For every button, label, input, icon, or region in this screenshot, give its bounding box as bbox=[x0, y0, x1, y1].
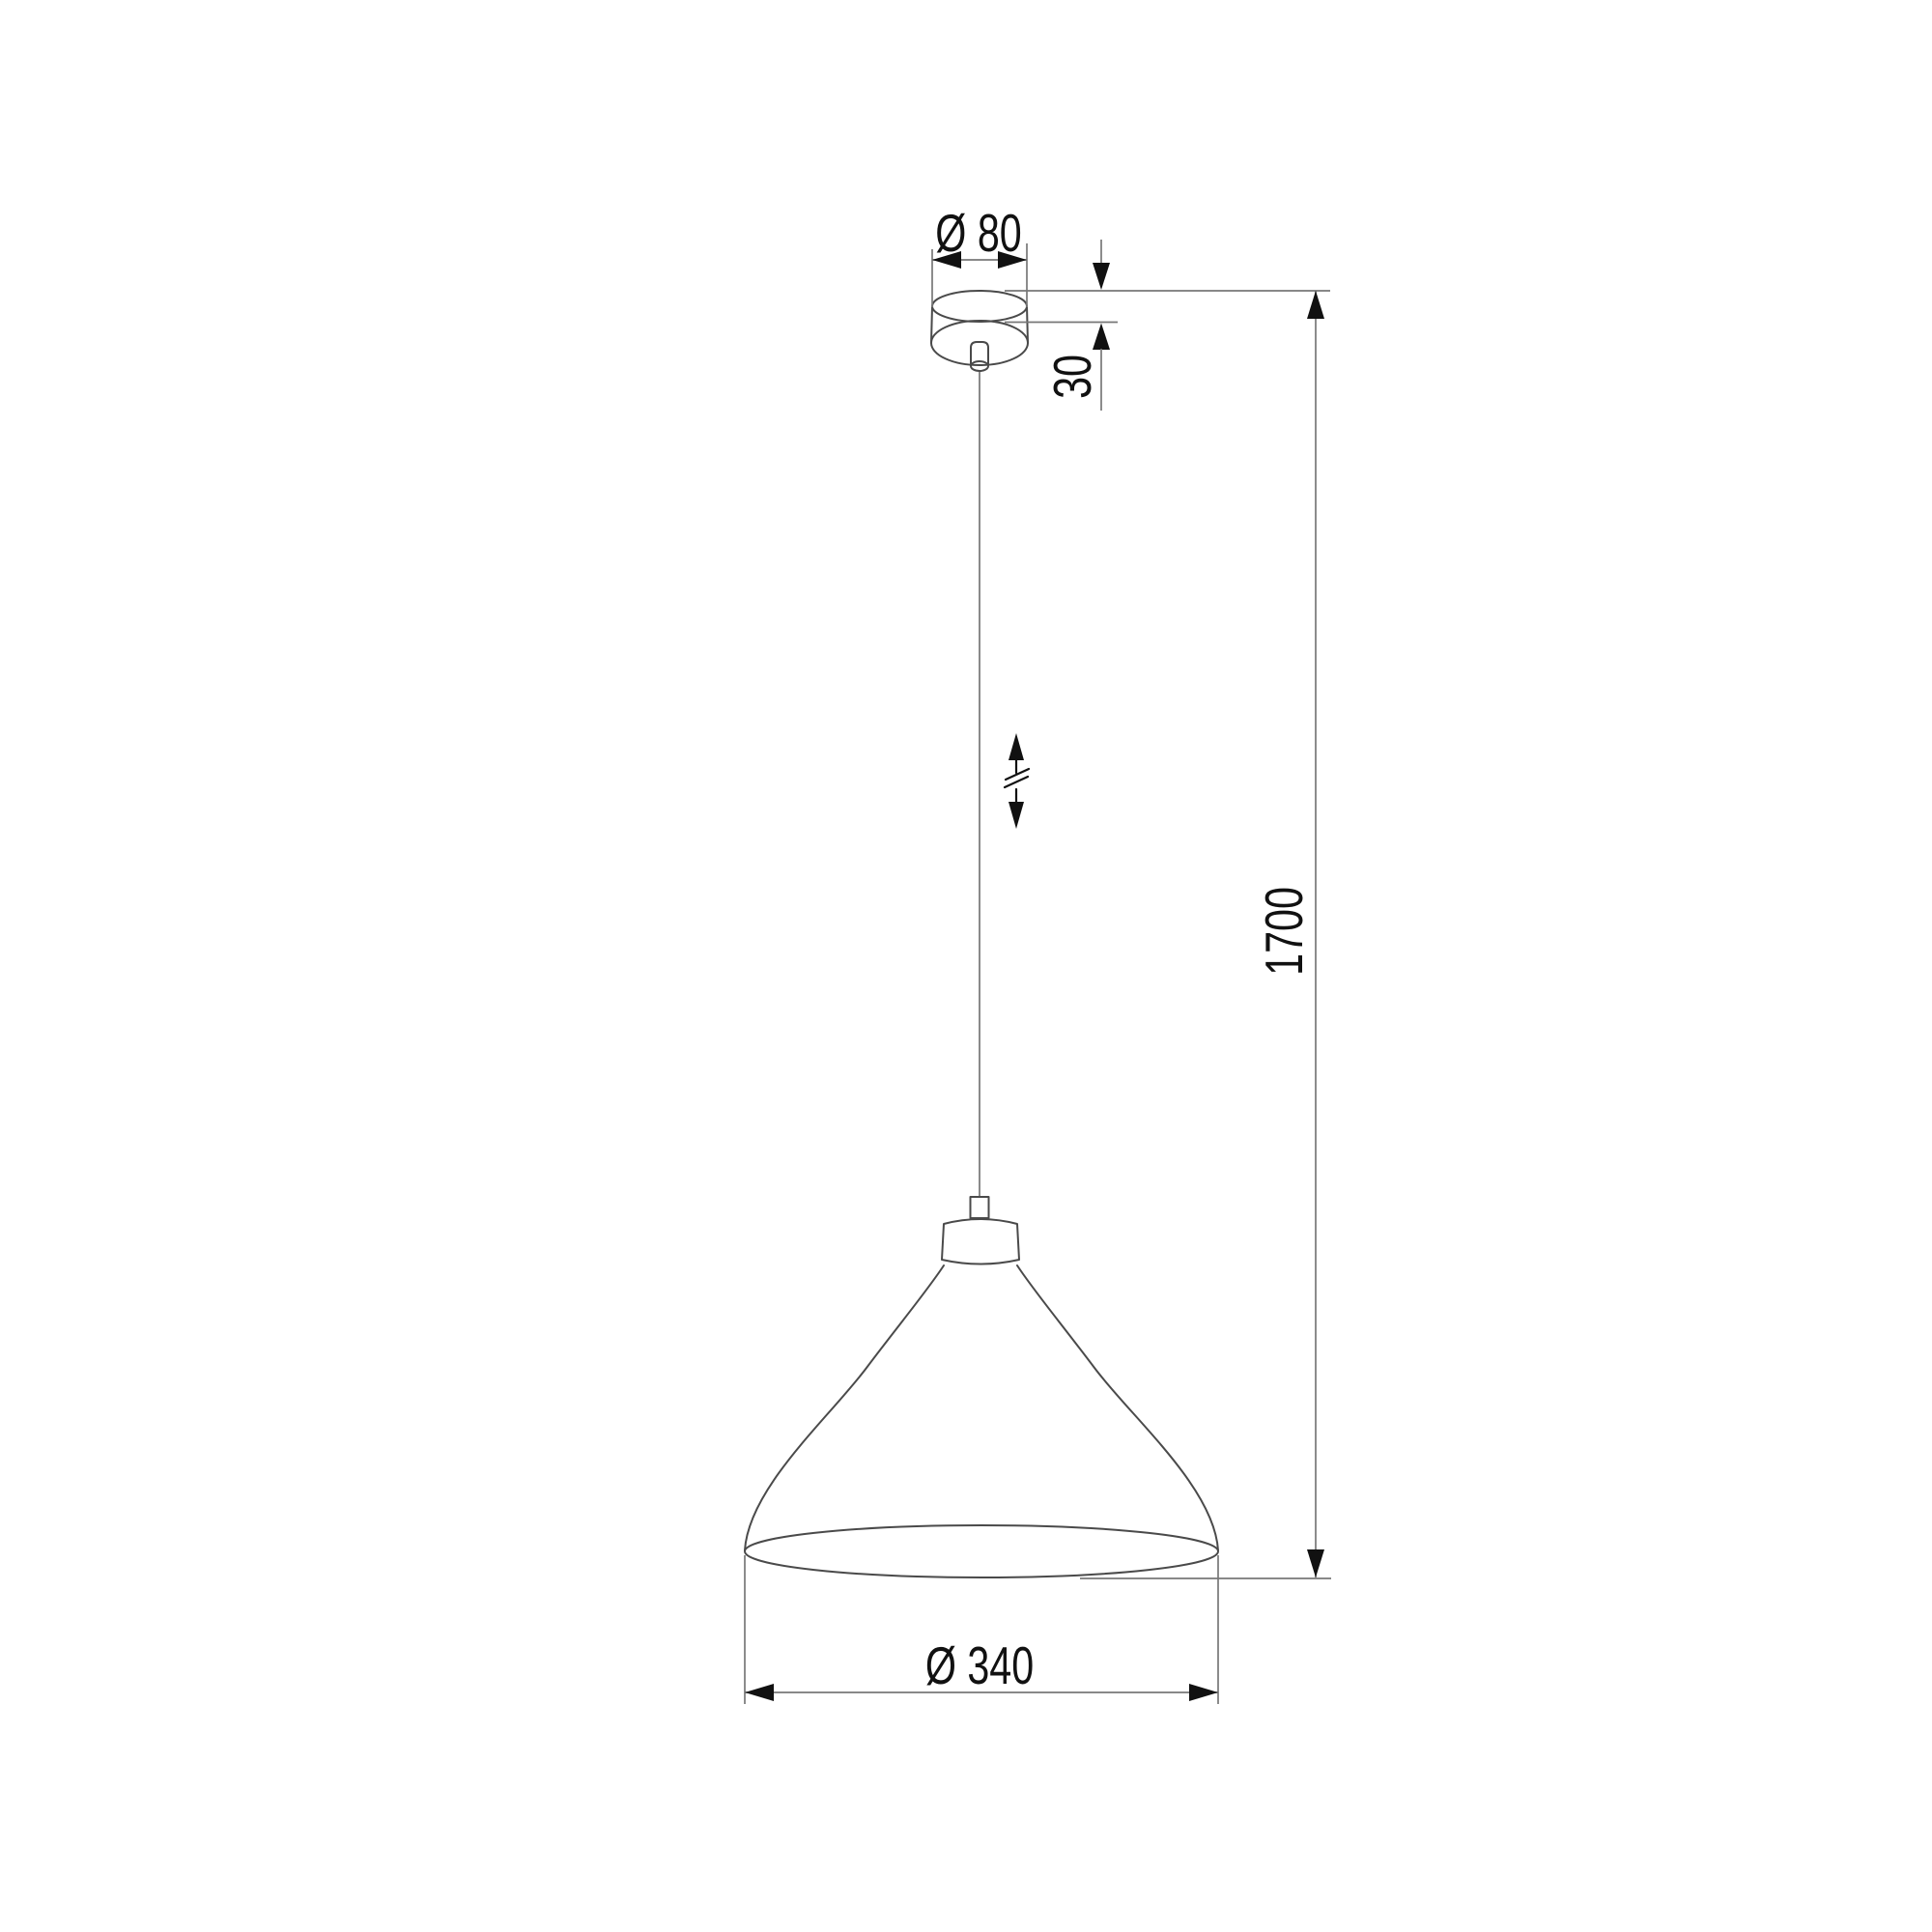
dim-canopy-height: 30 bbox=[1005, 240, 1330, 411]
ceiling-canopy bbox=[931, 291, 1028, 371]
pendant-lamp-drawing: Ø 80 30 1700 Ø 340 bbox=[0, 0, 1932, 1932]
dim-canopy-diameter: Ø 80 bbox=[932, 204, 1027, 307]
dim30-down-arrowhead bbox=[1093, 263, 1110, 290]
dim340-left-arrowhead bbox=[745, 1684, 774, 1701]
canopy-left-side bbox=[931, 306, 932, 343]
dim30-up-arrowhead bbox=[1093, 324, 1110, 351]
lamp-shade bbox=[745, 1265, 1218, 1577]
dim340-label: Ø 340 bbox=[925, 1636, 1034, 1695]
technical-drawing-canvas: Ø 80 30 1700 Ø 340 bbox=[0, 0, 1932, 1932]
dim1700-down-arrowhead bbox=[1307, 1549, 1324, 1577]
shade-bottom-opening bbox=[745, 1525, 1218, 1577]
dim1700-label: 1700 bbox=[1255, 887, 1314, 976]
shade-left-profile bbox=[745, 1265, 944, 1550]
lamp-socket bbox=[942, 1197, 1019, 1264]
dim-suspension-height: 1700 bbox=[1080, 291, 1331, 1578]
canopy-top-ellipse bbox=[932, 291, 1027, 322]
socket-body bbox=[942, 1219, 1019, 1264]
cable-connector bbox=[971, 1197, 989, 1218]
dim30-label: 30 bbox=[1043, 355, 1102, 399]
dim340-right-arrowhead bbox=[1189, 1684, 1218, 1701]
dim1700-up-arrowhead bbox=[1307, 291, 1324, 319]
adjust-up-arrowhead bbox=[1009, 733, 1024, 760]
canopy-right-side bbox=[1027, 306, 1028, 343]
adjust-down-arrowhead bbox=[1009, 802, 1024, 829]
cable-length-adjust-symbol bbox=[1005, 733, 1029, 829]
dim80-label: Ø 80 bbox=[935, 204, 1021, 263]
shade-right-profile bbox=[1017, 1265, 1218, 1550]
